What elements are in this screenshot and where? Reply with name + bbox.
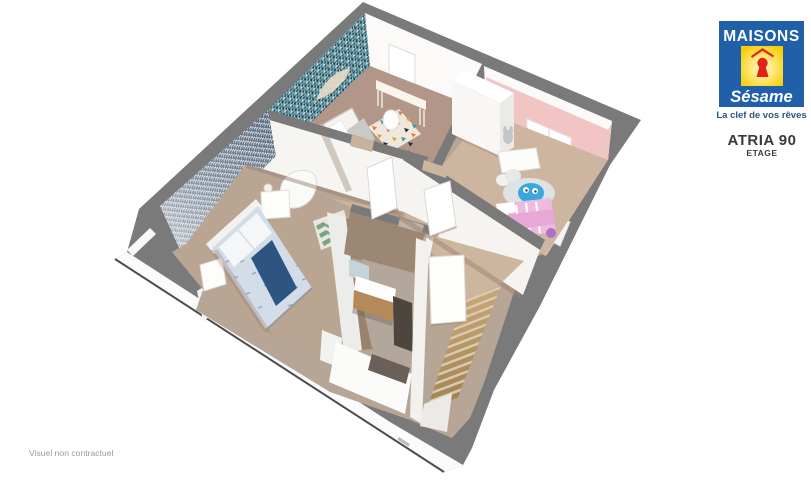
svg-text:ETAGE: ETAGE xyxy=(746,148,777,158)
svg-text:Visuel non contractuel: Visuel non contractuel xyxy=(29,448,113,458)
svg-text:La clef de vos rêves: La clef de vos rêves xyxy=(716,110,806,121)
svg-text:Sésame: Sésame xyxy=(730,88,792,106)
svg-text:MAISONS: MAISONS xyxy=(723,28,800,45)
svg-text:ATRIA 90: ATRIA 90 xyxy=(727,132,796,149)
